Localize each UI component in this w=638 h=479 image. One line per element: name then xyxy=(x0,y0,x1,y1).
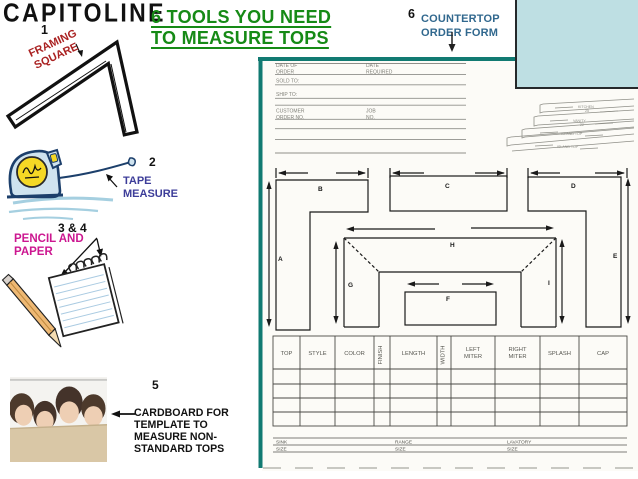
svg-text:WIDTH: WIDTH xyxy=(441,346,447,365)
svg-text:SINK: SINK xyxy=(276,440,288,446)
svg-text:SHIP TO:: SHIP TO: xyxy=(276,92,297,98)
svg-text:D: D xyxy=(571,183,576,190)
svg-text:G: G xyxy=(348,282,353,289)
svg-text:CUSTOMER: CUSTOMER xyxy=(276,109,305,115)
svg-text:LEFT: LEFT xyxy=(466,347,481,353)
svg-text:CAP: CAP xyxy=(597,351,609,357)
svg-text:ISLAND TOP: ISLAND TOP xyxy=(561,132,583,136)
svg-text:SPLASH: SPLASH xyxy=(548,351,571,357)
svg-text:DATE OF: DATE OF xyxy=(276,63,297,69)
svg-text:COLOR: COLOR xyxy=(344,351,365,357)
svg-text:TOP: TOP xyxy=(281,351,293,357)
svg-text:SOLD TO:: SOLD TO: xyxy=(276,79,299,85)
svg-text:DATE: DATE xyxy=(366,63,380,69)
svg-text:C: C xyxy=(445,183,450,190)
svg-text:SIZE: SIZE xyxy=(395,447,406,453)
svg-text:I: I xyxy=(548,280,550,287)
svg-text:A: A xyxy=(278,256,283,263)
svg-text:LAVATORY: LAVATORY xyxy=(507,440,532,446)
svg-text:MITER: MITER xyxy=(464,354,482,360)
svg-text:SIZE: SIZE xyxy=(507,447,518,453)
svg-text:RIGHT: RIGHT xyxy=(508,347,526,353)
svg-text:22: 22 xyxy=(580,123,584,127)
svg-text:ISLAND TOP: ISLAND TOP xyxy=(557,145,579,149)
svg-text:F: F xyxy=(446,296,450,303)
svg-text:25: 25 xyxy=(585,109,589,113)
svg-text:LENGTH: LENGTH xyxy=(402,351,426,357)
svg-text:STYLE: STYLE xyxy=(308,351,326,357)
svg-text:FINISH: FINISH xyxy=(378,345,384,364)
svg-text:SIZE: SIZE xyxy=(276,447,287,453)
svg-text:ORDER: ORDER xyxy=(276,69,294,75)
svg-text:JOB: JOB xyxy=(366,109,376,115)
svg-text:B: B xyxy=(318,186,323,193)
svg-text:H: H xyxy=(450,242,455,249)
svg-text:MITER: MITER xyxy=(508,354,526,360)
svg-text:RANGE: RANGE xyxy=(395,440,412,446)
svg-text:NO.: NO. xyxy=(366,115,375,121)
svg-text:E: E xyxy=(613,253,618,260)
svg-text:REQUIRED: REQUIRED xyxy=(366,69,393,75)
svg-text:ORDER NO.: ORDER NO. xyxy=(276,115,304,121)
